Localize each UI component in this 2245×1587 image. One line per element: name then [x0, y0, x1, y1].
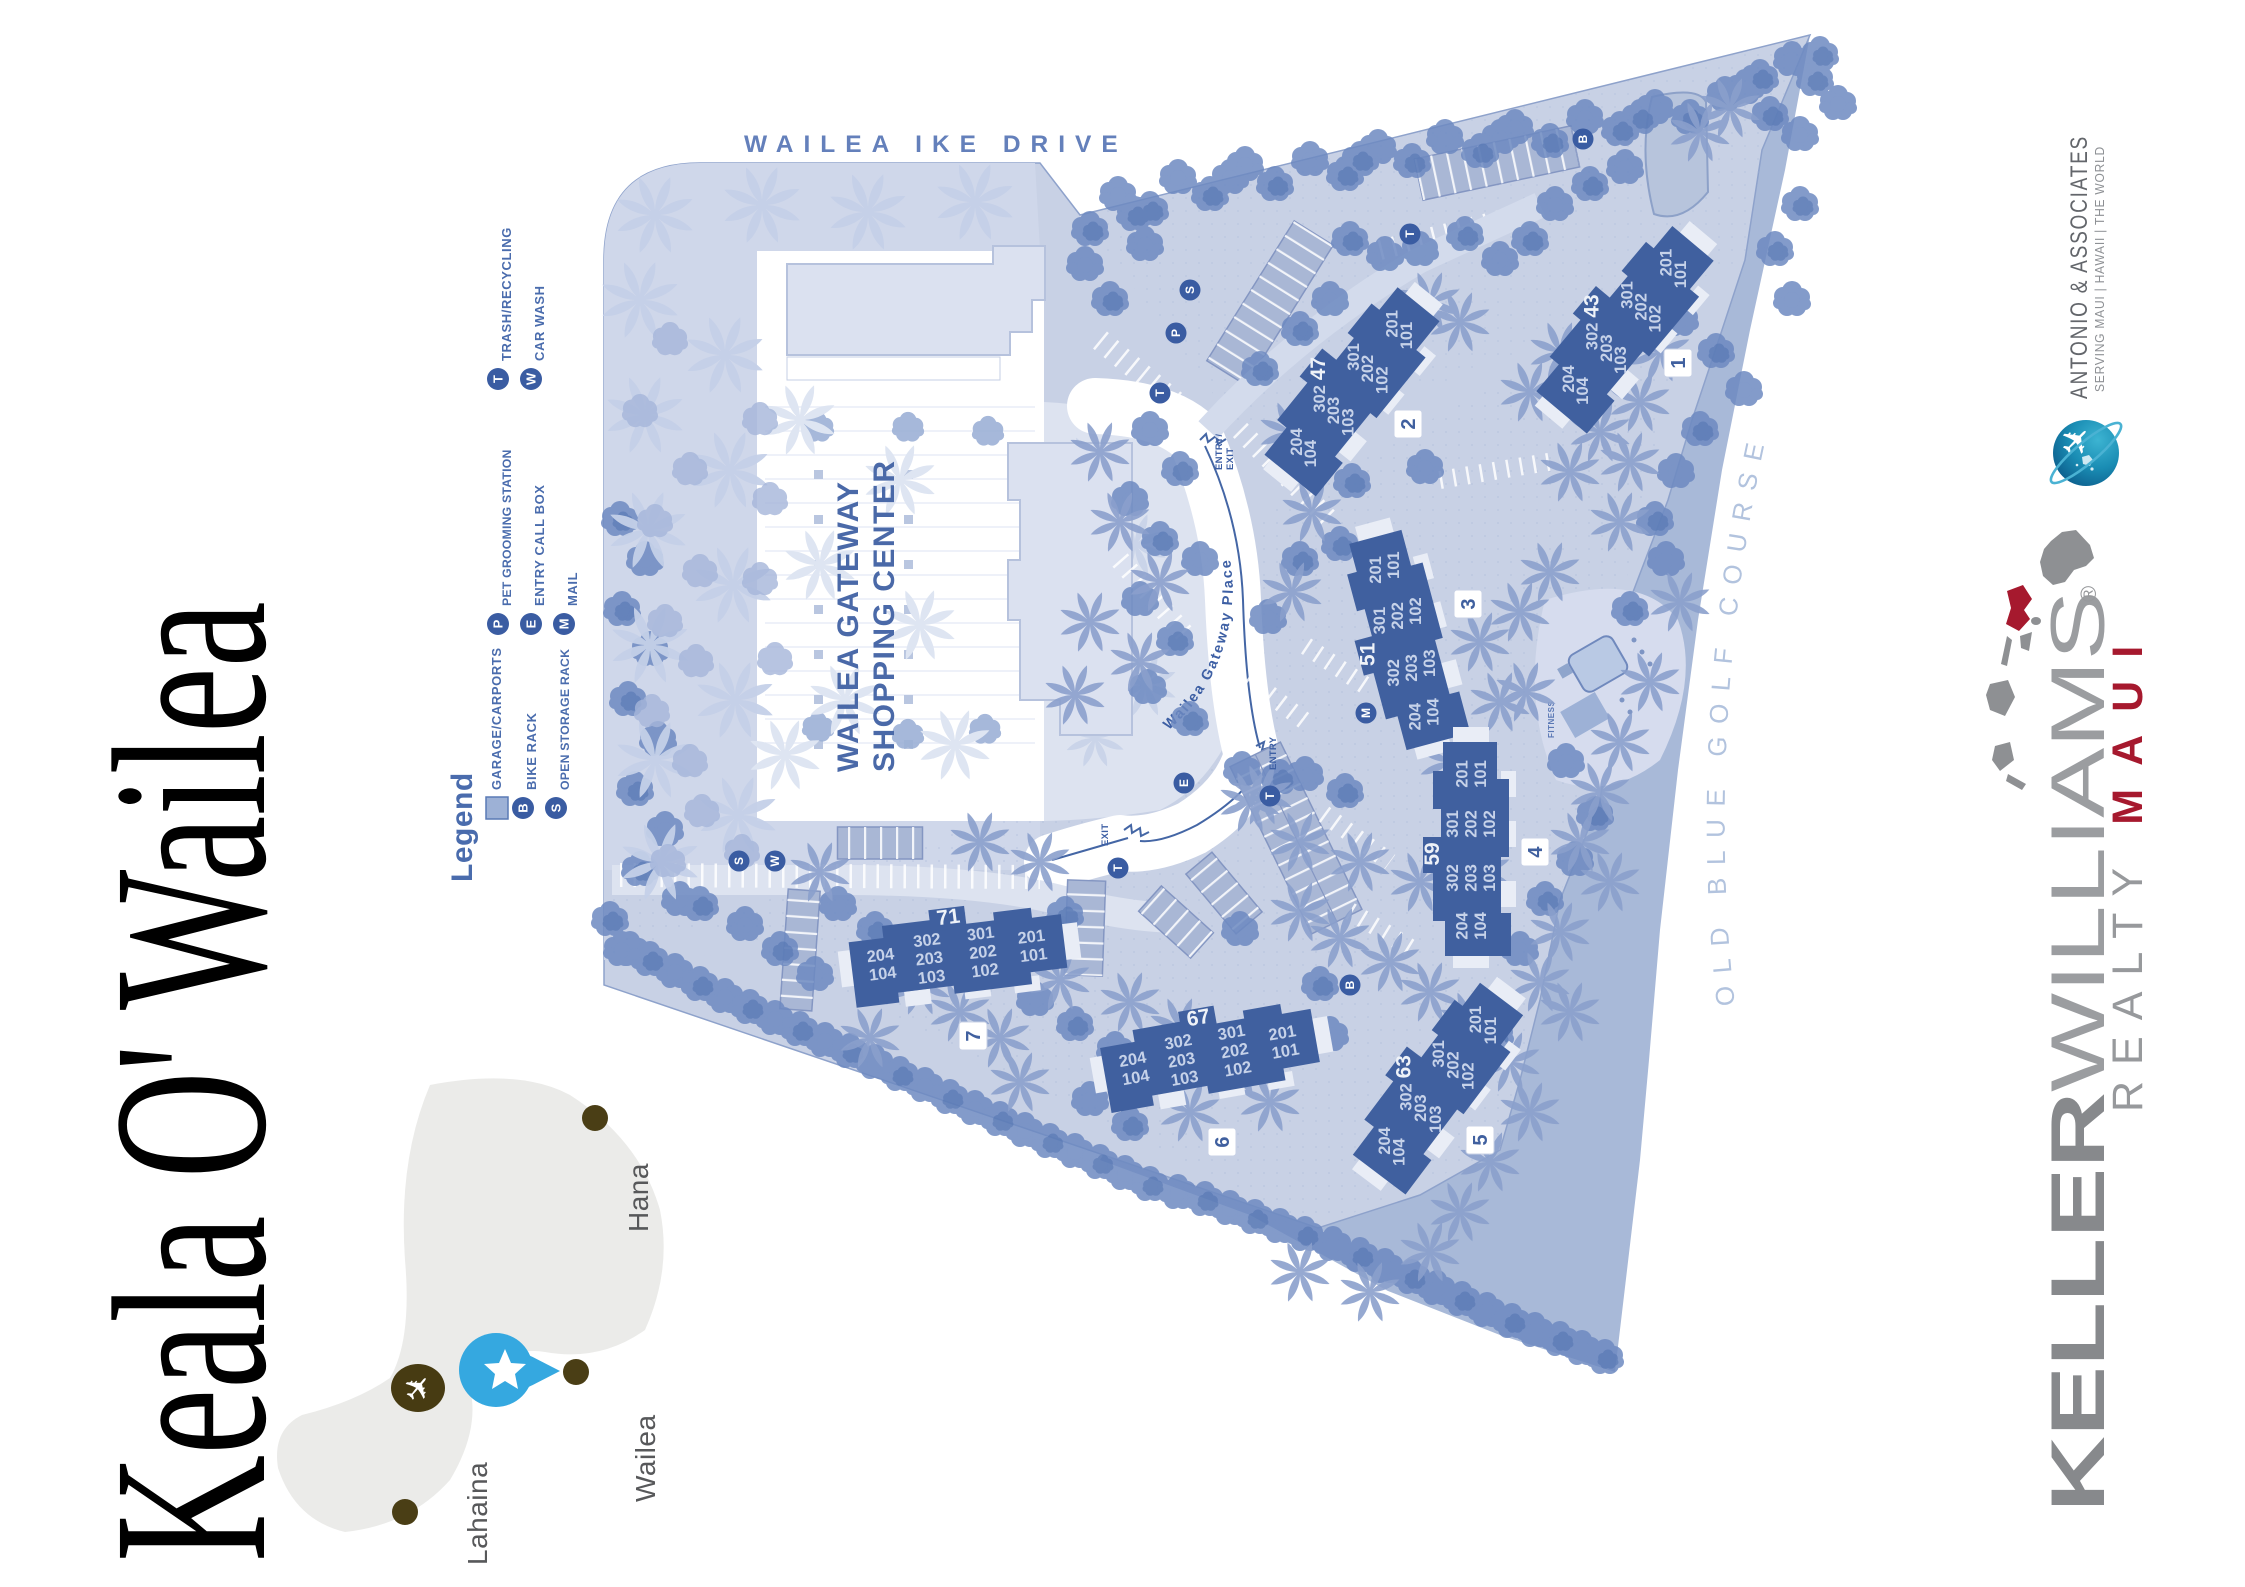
- svg-text:FITNESS: FITNESS: [1547, 701, 1556, 738]
- svg-text:P: P: [491, 619, 506, 628]
- svg-text:OPEN STORAGE RACK: OPEN STORAGE RACK: [558, 649, 572, 790]
- svg-text:302: 302: [1385, 659, 1403, 687]
- svg-text:201: 201: [1367, 556, 1385, 584]
- svg-text:103: 103: [1612, 346, 1630, 374]
- svg-text:103: 103: [1340, 408, 1358, 436]
- svg-text:59: 59: [1421, 842, 1444, 865]
- svg-text:ANTONIO & ASSOCIATES: ANTONIO & ASSOCIATES: [2066, 135, 2093, 399]
- svg-text:102: 102: [1459, 1062, 1477, 1090]
- svg-text:B: B: [1343, 980, 1357, 989]
- svg-text:51: 51: [1357, 642, 1380, 666]
- svg-text:104: 104: [1302, 439, 1320, 467]
- svg-text:5: 5: [1470, 1134, 1492, 1145]
- svg-text:4: 4: [1525, 846, 1547, 858]
- svg-text:204: 204: [1453, 911, 1471, 939]
- svg-text:103: 103: [917, 967, 947, 988]
- svg-text:MAIL: MAIL: [565, 572, 580, 606]
- svg-text:REALTY MAUI: REALTY MAUI: [2104, 623, 2152, 1112]
- svg-text:301: 301: [1371, 607, 1389, 635]
- svg-text:Lahaina: Lahaina: [462, 1462, 493, 1565]
- svg-text:102: 102: [1481, 810, 1499, 838]
- svg-text:104: 104: [1424, 697, 1442, 725]
- svg-text:B: B: [516, 803, 531, 812]
- svg-text:Keala O' Wailea: Keala O' Wailea: [70, 601, 313, 1562]
- svg-text:43: 43: [1580, 294, 1603, 317]
- svg-text:ENTRY CALL BOX: ENTRY CALL BOX: [532, 484, 547, 606]
- svg-text:302: 302: [1444, 864, 1462, 892]
- svg-text:103: 103: [1427, 1106, 1445, 1134]
- svg-text:203: 203: [1463, 864, 1481, 892]
- svg-text:101: 101: [1019, 945, 1049, 966]
- svg-text:S: S: [732, 857, 746, 865]
- svg-text:203: 203: [1403, 654, 1421, 682]
- svg-text:67: 67: [1185, 1005, 1212, 1032]
- svg-text:104: 104: [1574, 376, 1592, 404]
- svg-text:Hana: Hana: [623, 1163, 654, 1232]
- svg-text:W: W: [768, 855, 782, 867]
- svg-text:PET GROOMING STATION: PET GROOMING STATION: [500, 449, 514, 606]
- svg-text:E: E: [524, 619, 539, 628]
- svg-text:WAILEA IKE DRIVE: WAILEA IKE DRIVE: [744, 131, 1128, 158]
- svg-text:63: 63: [1392, 1055, 1415, 1078]
- svg-text:B: B: [1576, 134, 1590, 143]
- svg-text:ENTRY: ENTRY: [1268, 736, 1279, 770]
- svg-text:P: P: [1169, 329, 1183, 337]
- svg-text:101: 101: [1672, 261, 1690, 289]
- svg-text:ENTRY/: ENTRY/: [1214, 434, 1225, 470]
- svg-text:301: 301: [1444, 810, 1462, 838]
- svg-text:102: 102: [1647, 305, 1665, 333]
- svg-text:204: 204: [1406, 702, 1424, 730]
- svg-text:SERVING MAUI | HAWAII | THE WO: SERVING MAUI | HAWAII | THE WORLD: [2093, 146, 2107, 392]
- svg-text:®: ®: [2076, 586, 2101, 602]
- svg-text:M: M: [1359, 708, 1373, 718]
- svg-text:101: 101: [1482, 1017, 1500, 1045]
- svg-text:SHOPPING CENTER: SHOPPING CENTER: [868, 459, 901, 772]
- svg-text:102: 102: [970, 960, 1000, 981]
- svg-text:71: 71: [935, 905, 961, 931]
- svg-text:T: T: [1403, 230, 1417, 238]
- svg-text:BIKE RACK: BIKE RACK: [524, 712, 539, 790]
- svg-text:104: 104: [1391, 1137, 1409, 1165]
- svg-text:T: T: [1111, 864, 1125, 872]
- svg-text:6: 6: [1212, 1136, 1234, 1147]
- svg-text:W: W: [524, 372, 539, 385]
- svg-text:201: 201: [1453, 760, 1471, 788]
- svg-text:104: 104: [1472, 911, 1490, 939]
- svg-text:202: 202: [1463, 810, 1481, 838]
- svg-text:Wailea: Wailea: [630, 1414, 661, 1502]
- svg-text:EXIT: EXIT: [1100, 824, 1111, 846]
- svg-text:M: M: [557, 619, 572, 630]
- svg-text:TRASH/RECYCLING: TRASH/RECYCLING: [499, 227, 514, 361]
- svg-text:101: 101: [1385, 551, 1403, 579]
- svg-text:102: 102: [1374, 366, 1392, 394]
- svg-text:103: 103: [1421, 649, 1439, 677]
- svg-text:47: 47: [1307, 357, 1330, 380]
- svg-text:T: T: [1153, 389, 1167, 397]
- svg-text:WAILEA GATEWAY: WAILEA GATEWAY: [832, 480, 865, 772]
- svg-text:104: 104: [868, 963, 898, 984]
- svg-text:S: S: [549, 803, 564, 812]
- svg-text:E: E: [1177, 779, 1191, 787]
- svg-text:T: T: [1263, 792, 1277, 800]
- svg-text:1: 1: [1668, 357, 1690, 368]
- svg-text:Legend: Legend: [446, 772, 479, 882]
- svg-text:101: 101: [1398, 322, 1416, 350]
- svg-text:CAR WASH: CAR WASH: [532, 285, 547, 361]
- svg-text:103: 103: [1481, 864, 1499, 892]
- svg-text:EXIT: EXIT: [1225, 448, 1236, 470]
- svg-text:101: 101: [1472, 760, 1490, 788]
- svg-text:3: 3: [1458, 598, 1480, 609]
- svg-text:GARAGE/CARPORTS: GARAGE/CARPORTS: [489, 647, 504, 790]
- svg-text:2: 2: [1398, 418, 1420, 429]
- svg-text:7: 7: [963, 1030, 985, 1041]
- svg-text:S: S: [1183, 286, 1197, 294]
- svg-text:202: 202: [1389, 602, 1407, 630]
- svg-text:102: 102: [1407, 597, 1425, 625]
- svg-text:T: T: [491, 375, 506, 383]
